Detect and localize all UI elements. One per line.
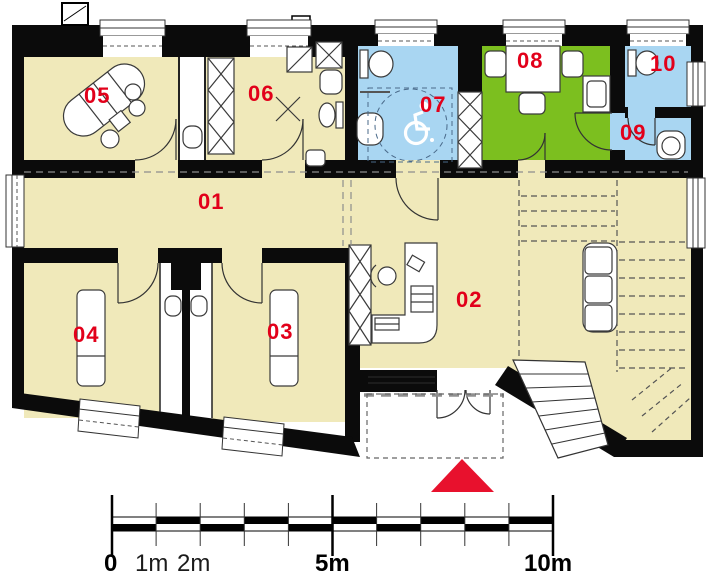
room-label-04: 04: [73, 324, 99, 346]
washbasin: [183, 126, 202, 148]
window-room-03-bottom: [222, 417, 284, 456]
room-label-03: 03: [267, 321, 293, 343]
scale-label-5m: 5m: [315, 552, 350, 576]
room-label-07: 07: [420, 94, 446, 116]
door-opening-04: [118, 248, 158, 263]
small-sink: [306, 150, 325, 166]
room-label-10: 10: [650, 53, 676, 75]
scale-label-0: 0: [104, 552, 117, 576]
toilet-tank: [360, 50, 368, 78]
toilet-bowl: [319, 103, 335, 127]
chair: [125, 84, 141, 100]
scale-label-2m: 2m: [177, 552, 210, 576]
washbasin: [191, 296, 207, 316]
door-opening-03: [222, 248, 262, 263]
door-opening-06: [262, 160, 305, 178]
porch-outline: [367, 394, 503, 458]
wall-06-07: [345, 25, 358, 178]
scale-label-10m: 10m: [524, 552, 572, 576]
basin-bowl: [662, 137, 680, 155]
room-label-01: 01: [198, 191, 224, 213]
chair: [101, 130, 119, 148]
chair: [129, 100, 145, 116]
room-label-08: 08: [517, 50, 543, 72]
desk-shelf: [411, 286, 433, 312]
wall-07-08: [458, 38, 482, 92]
office-chair: [378, 267, 396, 285]
chair: [519, 93, 545, 114]
kitchen-sink: [587, 81, 606, 107]
toilet-tank: [336, 102, 343, 128]
entry-double-door: [437, 390, 490, 418]
door-opening-08: [518, 160, 545, 178]
entrance-marker-triangle: [431, 459, 494, 492]
window-corridor-left: [6, 175, 24, 247]
room-label-05: 05: [84, 85, 110, 107]
room-label-02: 02: [456, 289, 482, 311]
toilet-bowl: [369, 51, 393, 77]
window-room-07: [375, 20, 437, 46]
washbasin: [320, 70, 342, 94]
room-01-area: [24, 178, 691, 248]
door-opening-07: [396, 160, 440, 178]
window-room-08: [503, 20, 565, 46]
wall-08-10: [610, 25, 625, 120]
wall-niche-divider: [182, 263, 190, 418]
toilet-tank: [628, 50, 636, 76]
window-room-04-bottom: [78, 399, 140, 438]
window-room-10-right: [687, 62, 705, 106]
room-label-06: 06: [248, 83, 274, 105]
tall-cabinet: [458, 92, 482, 168]
door-opening-10: [628, 107, 655, 118]
sofa: [583, 243, 617, 332]
door-opening-05: [135, 160, 178, 178]
window-room-02-right: [687, 178, 705, 248]
room-label-09: 09: [620, 122, 646, 144]
washbasin: [357, 113, 383, 145]
scale-label-1m: 1m: [135, 552, 168, 576]
window-room-05: [100, 20, 165, 57]
wall-bottom-right: [614, 440, 703, 457]
chair: [485, 51, 506, 77]
wall-corridor-top: [24, 160, 691, 178]
washbasin: [165, 296, 181, 316]
floor-plan-canvas: 01 02 03 04 05 06 07 08 09 10 0 1m 2m 5m…: [0, 0, 709, 580]
room-09-fixtures: [657, 131, 685, 159]
wall-entry: [360, 370, 437, 392]
chair: [562, 51, 583, 77]
entrance-area: [364, 377, 504, 492]
window-room-10-top: [627, 20, 689, 46]
scale-bar: [112, 495, 553, 556]
